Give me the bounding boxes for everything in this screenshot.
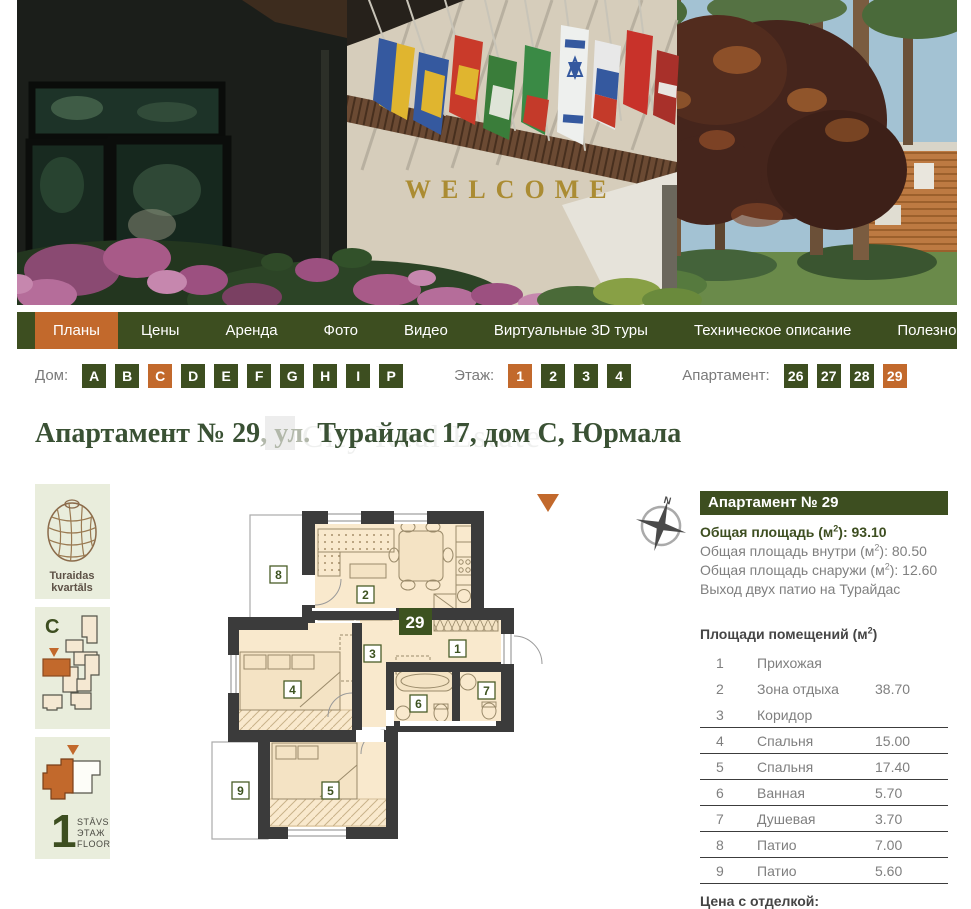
project-name-line1: Turaidas bbox=[49, 570, 94, 582]
price-label: Цена с отделкой: bbox=[700, 893, 948, 909]
room-name: Прихожая bbox=[757, 655, 875, 671]
floor-filter-group: 1234 bbox=[508, 364, 640, 388]
house-option[interactable]: D bbox=[181, 364, 205, 388]
apartment-option[interactable]: 27 bbox=[817, 364, 841, 388]
house-option[interactable]: H bbox=[313, 364, 337, 388]
site-plan-box[interactable]: C bbox=[35, 607, 110, 729]
room-number: 3 bbox=[700, 707, 757, 723]
room-number: 2 bbox=[700, 681, 757, 697]
floor-option[interactable]: 4 bbox=[607, 364, 631, 388]
entrance-marker-icon bbox=[537, 494, 559, 512]
room-name: Душевая bbox=[757, 811, 875, 827]
svg-text:29: 29 bbox=[406, 613, 425, 632]
house-option[interactable]: I bbox=[346, 364, 370, 388]
svg-text:6: 6 bbox=[415, 697, 422, 711]
nav-item[interactable]: Аренда bbox=[202, 312, 300, 349]
nav-item[interactable]: Полезное bbox=[874, 312, 971, 349]
floor-option[interactable]: 2 bbox=[541, 364, 565, 388]
svg-text:9: 9 bbox=[237, 784, 244, 798]
house-option[interactable]: G bbox=[280, 364, 304, 388]
room-area: 7.00 bbox=[875, 837, 948, 853]
table-row: 7 Душевая 3.70 bbox=[700, 806, 948, 832]
room-area: 38.70 bbox=[875, 681, 948, 697]
room-number: 4 bbox=[700, 733, 757, 749]
table-row: 1 Прихожая bbox=[700, 650, 948, 676]
details-header: Апартамент № 29 bbox=[700, 491, 948, 515]
house-filter-label: Дом: bbox=[35, 367, 68, 384]
nav-item[interactable]: Цены bbox=[118, 312, 203, 349]
total-area: Общая площадь (м2): 93.10 bbox=[700, 523, 948, 542]
room-name: Зона отдыха bbox=[757, 681, 875, 697]
floor-footprint bbox=[43, 759, 100, 799]
apartment-filter-group: 26272829 bbox=[784, 364, 916, 388]
floor-filter-label: Этаж: bbox=[454, 367, 494, 384]
apartment-badge: 29 bbox=[399, 608, 432, 635]
svg-text:3: 3 bbox=[369, 647, 376, 661]
room-name: Коридор bbox=[757, 707, 875, 723]
building-letter: C bbox=[45, 616, 59, 638]
table-row: 3 Коридор bbox=[700, 702, 948, 728]
floor-option[interactable]: 3 bbox=[574, 364, 598, 388]
room-number: 7 bbox=[700, 811, 757, 827]
svg-text:7: 7 bbox=[483, 684, 490, 698]
house-option[interactable]: F bbox=[247, 364, 271, 388]
apartment-filter-label: Апартамент: bbox=[682, 367, 770, 384]
house-option[interactable]: A bbox=[82, 364, 106, 388]
table-row: 5 Спальня 17.40 bbox=[700, 754, 948, 780]
svg-text:N: N bbox=[662, 495, 672, 507]
nav-item[interactable]: Виртуальные 3D туры bbox=[471, 312, 671, 349]
house-option[interactable]: C bbox=[148, 364, 172, 388]
room-name: Патио bbox=[757, 837, 875, 853]
floor-number: 1 bbox=[51, 805, 77, 857]
title-row: City Real Estate Апартамент № 29, ул. Ту… bbox=[17, 418, 957, 458]
content: Turaidas kvartāls C bbox=[17, 484, 957, 878]
table-row: 8 Патио 7.00 bbox=[700, 832, 948, 858]
floor-word-ru: ЭТАЖ bbox=[77, 828, 105, 838]
floor-option[interactable]: 1 bbox=[508, 364, 532, 388]
project-name-line2: kvartāls bbox=[51, 582, 93, 594]
apartment-details-panel: Апартамент № 29 Общая площадь (м2): 93.1… bbox=[700, 491, 948, 909]
house-option[interactable]: P bbox=[379, 364, 403, 388]
welcome-sign: WELCOME bbox=[405, 175, 617, 204]
page-title: Апартамент № 29, ул. Турайдас 17, дом С,… bbox=[35, 418, 957, 450]
apartment-option[interactable]: 26 bbox=[784, 364, 808, 388]
room-name: Ванная bbox=[757, 785, 875, 801]
outer-area: Общая площадь снаружи (м2): 12.60 bbox=[700, 561, 948, 580]
nav-item[interactable]: Планы bbox=[35, 312, 118, 349]
compass-icon: N bbox=[629, 489, 694, 558]
main-nav: Планы Цены Аренда Фото Видео Виртуальные… bbox=[17, 312, 957, 349]
house-option[interactable]: E bbox=[214, 364, 238, 388]
floor-plan: 29 1 2 3 4 5 6 7 8 9 bbox=[200, 487, 700, 882]
floor-marker-icon bbox=[67, 745, 79, 755]
room-number: 8 bbox=[700, 837, 757, 853]
room-number: 5 bbox=[700, 759, 757, 775]
room-name: Спальня bbox=[757, 759, 875, 775]
nav-item[interactable]: Техническое описание bbox=[671, 312, 874, 349]
site-marker-icon bbox=[49, 648, 59, 657]
project-logo-box[interactable]: Turaidas kvartāls bbox=[35, 484, 110, 599]
table-row: 6 Ванная 5.70 bbox=[700, 780, 948, 806]
floor-plan-box[interactable]: 1 STĀVS ЭТАЖ FLOOR bbox=[35, 737, 110, 859]
table-row: 2 Зона отдыха 38.70 bbox=[700, 676, 948, 702]
svg-text:4: 4 bbox=[289, 683, 296, 697]
nav-item[interactable]: Видео bbox=[381, 312, 471, 349]
patio-note: Выход двух патио на Турайдас bbox=[700, 580, 948, 599]
floor-word-en: FLOOR bbox=[77, 839, 110, 849]
page: WELCOME bbox=[17, 0, 957, 878]
filter-bar: Дом: ABCDEFGHIP Этаж: 1234 Апартамент: 2… bbox=[17, 363, 957, 388]
room-area: 3.70 bbox=[875, 811, 948, 827]
rooms-table-title: Площади помещений (м2) bbox=[700, 626, 948, 642]
area-summary: Общая площадь (м2): 93.10 Общая площадь … bbox=[700, 523, 948, 599]
sidebar: Turaidas kvartāls C bbox=[35, 484, 110, 859]
floor-word-lv: STĀVS bbox=[77, 817, 109, 827]
inner-area: Общая площадь внутри (м2): 80.50 bbox=[700, 542, 948, 561]
table-row: 9 Патио 5.60 bbox=[700, 858, 948, 884]
house-filter-group: ABCDEFGHIP bbox=[82, 364, 412, 388]
hero-photo: WELCOME bbox=[17, 0, 957, 305]
room-name: Спальня bbox=[757, 733, 875, 749]
room-number: 1 bbox=[700, 655, 757, 671]
room-area: 15.00 bbox=[875, 733, 948, 749]
svg-text:1: 1 bbox=[454, 642, 461, 656]
svg-text:5: 5 bbox=[327, 784, 334, 798]
svg-text:2: 2 bbox=[362, 588, 369, 602]
rooms-table: 1 Прихожая 2 Зона отдыха 38.70 3 Коридор bbox=[700, 650, 948, 884]
house-option[interactable]: B bbox=[115, 364, 139, 388]
apartment-option[interactable]: 28 bbox=[850, 364, 874, 388]
highlighted-building bbox=[43, 659, 70, 676]
room-number: 6 bbox=[700, 785, 757, 801]
apartment-option[interactable]: 29 bbox=[883, 364, 907, 388]
nav-item[interactable]: Фото bbox=[301, 312, 381, 349]
room-area: 5.70 bbox=[875, 785, 948, 801]
table-row: 4 Спальня 15.00 bbox=[700, 728, 948, 754]
room-area: 17.40 bbox=[875, 759, 948, 775]
svg-text:8: 8 bbox=[275, 568, 282, 582]
pinecone-icon bbox=[45, 497, 99, 566]
